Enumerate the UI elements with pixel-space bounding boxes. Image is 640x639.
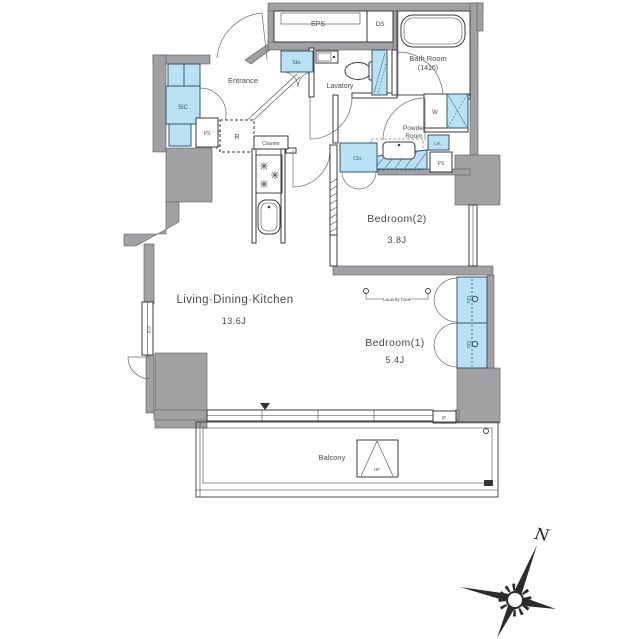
drain-icon	[484, 429, 489, 434]
balcony-label: Balcony	[319, 453, 346, 462]
burner-icons	[260, 162, 279, 188]
sliding-door-partition	[330, 145, 337, 235]
balcony: Balcony HF	[196, 422, 498, 497]
storage-sto: Sto.	[281, 51, 313, 87]
laundry-hook: Laundry hook	[364, 289, 431, 303]
closet-label: Clo.	[353, 156, 363, 162]
fix-window: FIX	[142, 302, 153, 355]
stove-icon	[256, 155, 282, 193]
entrance-label: Entrance	[228, 76, 258, 85]
ps-label-2: PS	[438, 161, 445, 167]
washer-label: W	[432, 110, 438, 116]
room-bedroom2: Bedroom(2) 3.8J	[367, 205, 477, 266]
corridor-door	[293, 150, 330, 187]
balcony-mark	[484, 480, 493, 486]
bedroom2-label: Bedroom(2)	[367, 213, 426, 225]
ds-shaft: DS	[367, 11, 393, 42]
pipe-space-entrance: PS	[196, 118, 218, 147]
compass-rose: N	[460, 524, 556, 638]
eps-shaft: EPS	[274, 11, 367, 42]
balcony-windows: P	[207, 403, 456, 423]
laundry-hook-label: Laundry hook	[383, 297, 412, 302]
fix-label: FIX	[147, 326, 152, 333]
closet-label-l: Clo.	[465, 341, 471, 350]
room-bathroom: Bath Room (1416)	[397, 11, 470, 97]
lavatory-label: Lavatory	[327, 83, 354, 90]
closet-bedroom1-upper: Clo.	[434, 277, 487, 323]
closet-label-u: Clo.	[465, 296, 471, 305]
sic-label: SIC	[178, 105, 189, 111]
window-marker-icon	[260, 403, 270, 410]
room-lavatory: Lavatory	[310, 50, 387, 139]
floor-plan: EPS DS Bath Room (1416) Lavatory Sto.	[0, 0, 640, 639]
bedroom1-size: 5.4J	[385, 355, 404, 365]
bedroom2-size: 3.8J	[387, 235, 406, 245]
hatch-label: HF	[374, 467, 380, 472]
room-entrance: Entrance	[217, 13, 267, 85]
linen-label: Lin.	[434, 141, 441, 146]
ds-label: DS	[375, 21, 385, 28]
closet-middle: Clo.	[340, 143, 377, 189]
ps-label: PS	[204, 131, 211, 137]
kitchen-sink-icon	[258, 200, 280, 234]
closet-bedroom1-lower: Clo.	[434, 323, 487, 368]
refrigerator-label: R	[234, 134, 239, 141]
eps-label: EPS	[311, 21, 325, 28]
bedroom1-label: Bedroom(1)	[365, 337, 424, 349]
ldk-size: 13.6J	[222, 316, 247, 326]
sto-label: Sto.	[292, 60, 302, 66]
ldk-label: Living·Dining·Kitchen	[176, 294, 293, 306]
evacuation-hatch: HF	[357, 440, 398, 477]
powder-label-1: Powder	[403, 125, 426, 132]
room-bedroom1: Bedroom(1) 5.4J Laundry hook Clo. Clo.	[364, 277, 488, 368]
pipe-label: P	[442, 416, 446, 422]
bathtub-icon	[401, 15, 465, 47]
toilet-icon	[345, 63, 371, 80]
kitchen: R Counter	[220, 120, 288, 243]
counter-label: Counter	[262, 141, 280, 147]
compass-north-label: N	[532, 524, 551, 545]
room-powder: W Powder Room Lin. PS	[370, 94, 468, 172]
